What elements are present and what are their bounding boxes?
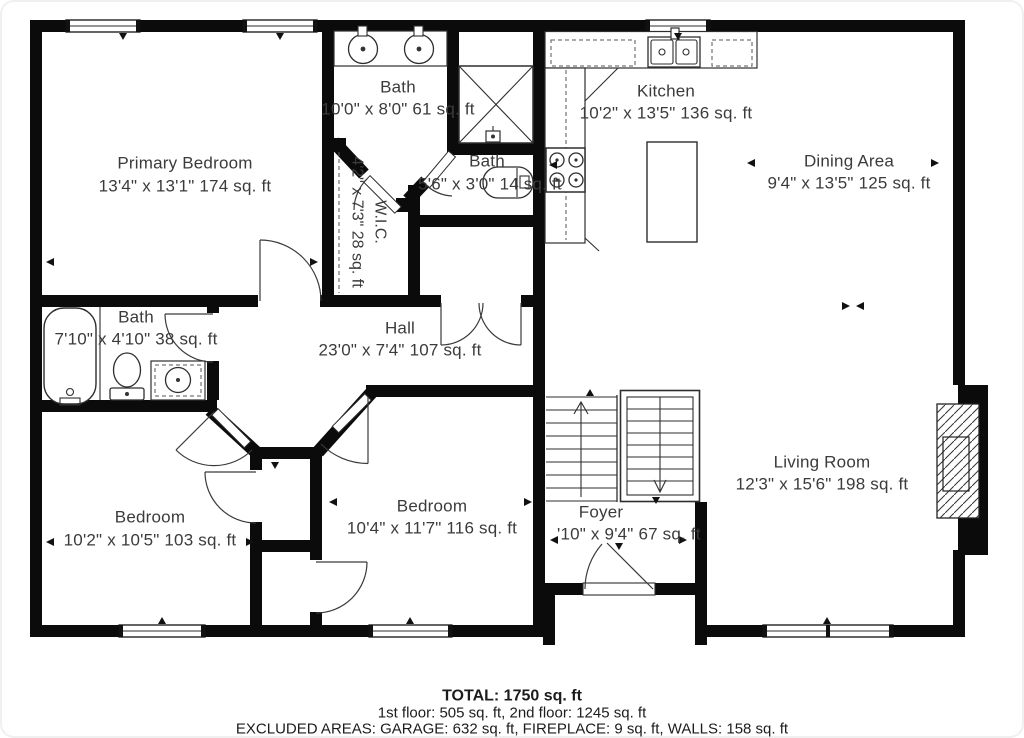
- svg-text:10'2" x 13'5" 136 sq. ft: 10'2" x 13'5" 136 sq. ft: [580, 104, 753, 123]
- summary-floors: 1st floor: 505 sq. ft, 2nd floor: 1245 s…: [378, 705, 647, 722]
- room-label-bedroom-left: Bedroom 10'2" x 10'5" 103 sq. ft: [64, 508, 237, 550]
- svg-text:12'3" x 15'6" 198 sq. ft: 12'3" x 15'6" 198 sq. ft: [736, 475, 909, 494]
- svg-text:7'10" x 4'10" 38 sq. ft: 7'10" x 4'10" 38 sq. ft: [54, 330, 217, 349]
- room-label-hall: Hall 23'0" x 7'4" 107 sq. ft: [318, 319, 481, 360]
- summary-total: TOTAL: 1750 sq. ft: [442, 688, 583, 705]
- svg-text:Bedroom: Bedroom: [115, 508, 185, 527]
- svg-text:9'4" x 13'5" 125 sq. ft: 9'4" x 13'5" 125 sq. ft: [767, 174, 930, 193]
- svg-text:W.I.C.: W.I.C.: [372, 200, 389, 244]
- summary-excluded: EXCLUDED AREAS: GARAGE: 632 sq. ft, FIRE…: [236, 721, 789, 738]
- window: [763, 625, 893, 637]
- svg-text:'10" x 9'4" 67 sq. ft: '10" x 9'4" 67 sq. ft: [557, 525, 701, 544]
- svg-text:13'4" x 13'1" 174 sq. ft: 13'4" x 13'1" 174 sq. ft: [99, 177, 272, 196]
- svg-text:Dining Area: Dining Area: [804, 152, 894, 171]
- staircase: [546, 389, 700, 504]
- svg-text:Bath: Bath: [469, 152, 505, 171]
- svg-text:10'2" x 10'5" 103 sq. ft: 10'2" x 10'5" 103 sq. ft: [64, 531, 237, 550]
- room-label-primary-bedroom: Primary Bedroom 13'4" x 13'1" 174 sq. ft: [99, 154, 272, 196]
- svg-text:23'0" x 7'4" 107 sq. ft: 23'0" x 7'4" 107 sq. ft: [318, 341, 481, 360]
- svg-text:Bedroom: Bedroom: [397, 497, 467, 516]
- svg-text:Bath: Bath: [118, 308, 154, 327]
- window: [243, 20, 317, 32]
- room-label-kitchen: Kitchen 10'2" x 13'5" 136 sq. ft: [580, 82, 753, 123]
- svg-text:5'6" x 3'0" 14 sq. ft: 5'6" x 3'0" 14 sq. ft: [418, 175, 562, 194]
- floor-plan: Primary Bedroom 13'4" x 13'1" 174 sq. ft…: [0, 0, 1024, 738]
- door-closet-lower: [316, 562, 367, 613]
- door-bedroom-left: [176, 409, 252, 466]
- svg-text:Foyer: Foyer: [579, 503, 624, 522]
- window: [369, 625, 452, 637]
- room-label-living: Living Room 12'3" x 15'6" 198 sq. ft: [736, 453, 909, 494]
- double-vanity: [334, 26, 447, 66]
- svg-text:Living Room: Living Room: [774, 453, 871, 472]
- door-primary-bedroom: [260, 240, 321, 301]
- svg-text:Hall: Hall: [385, 319, 415, 338]
- window: [66, 20, 140, 32]
- toilet-hall-bath: [110, 353, 144, 400]
- room-label-dining: Dining Area 9'4" x 13'5" 125 sq. ft: [767, 152, 930, 193]
- svg-text:4'2" x 7'3" 28 sq. ft: 4'2" x 7'3" 28 sq. ft: [349, 156, 366, 288]
- window: [119, 625, 205, 637]
- door-closet-upper: [205, 472, 256, 523]
- kitchen-island: [647, 142, 697, 242]
- svg-text:10'0" x 8'0" 61 sq. ft: 10'0" x 8'0" 61 sq. ft: [321, 100, 474, 119]
- svg-text:Bath: Bath: [380, 78, 416, 97]
- fireplace: [937, 385, 988, 555]
- sink-vanity: [151, 361, 205, 400]
- room-label-foyer: Foyer '10" x 9'4" 67 sq. ft: [557, 503, 701, 544]
- room-label-wic: W.I.C. 4'2" x 7'3" 28 sq. ft: [349, 156, 389, 288]
- room-label-bedroom-mid: Bedroom 10'4" x 11'7" 116 sq. ft: [347, 497, 517, 538]
- svg-text:10'4" x 11'7" 116 sq. ft: 10'4" x 11'7" 116 sq. ft: [347, 519, 517, 538]
- floor-plan-page: Primary Bedroom 13'4" x 13'1" 174 sq. ft…: [0, 0, 1024, 738]
- svg-text:Kitchen: Kitchen: [637, 82, 695, 101]
- svg-text:Primary Bedroom: Primary Bedroom: [117, 154, 252, 173]
- bathtub: [44, 307, 100, 405]
- double-door-closet-hall: [441, 303, 521, 345]
- area-summary: TOTAL: 1750 sq. ft 1st floor: 505 sq. ft…: [236, 688, 789, 738]
